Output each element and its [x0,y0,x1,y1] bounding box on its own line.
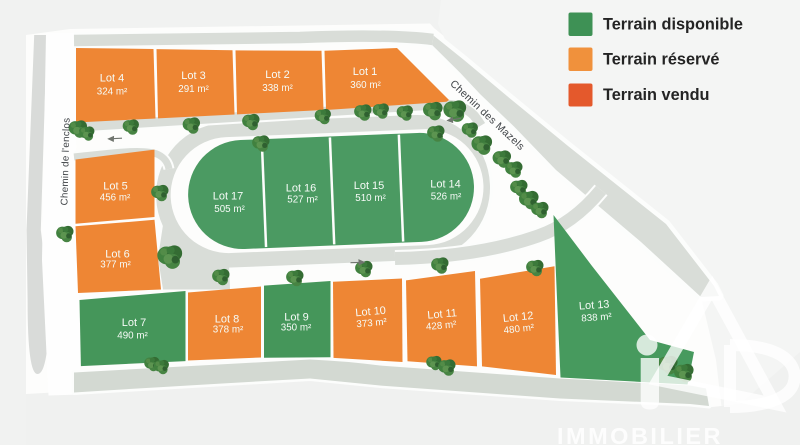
svg-text:Lot 1: Lot 1 [353,66,377,78]
svg-text:324 m²: 324 m² [97,87,128,98]
svg-text:Terrain réservé: Terrain réservé [603,51,719,69]
svg-text:Lot 13: Lot 13 [579,298,610,312]
svg-text:527 m²: 527 m² [287,195,318,206]
svg-text:456 m²: 456 m² [100,193,131,204]
svg-text:378 m²: 378 m² [213,325,244,336]
svg-text:Lot 2: Lot 2 [265,69,289,81]
svg-text:Terrain disponible: Terrain disponible [603,16,743,34]
svg-text:377 m²: 377 m² [100,260,131,271]
svg-text:IMMOBILIER: IMMOBILIER [557,423,723,445]
svg-text:Lot 3: Lot 3 [181,70,205,82]
svg-text:510 m²: 510 m² [355,193,386,204]
svg-text:Lot 17: Lot 17 [213,191,244,203]
svg-text:291 m²: 291 m² [178,84,209,95]
svg-text:Lot 4: Lot 4 [100,73,124,85]
svg-text:505 m²: 505 m² [214,204,245,215]
svg-text:Chemin de l'enclos: Chemin de l'enclos [59,117,72,205]
svg-text:Lot 5: Lot 5 [103,181,127,193]
svg-text:Lot 16: Lot 16 [286,183,317,195]
svg-text:Lot 14: Lot 14 [430,179,461,191]
svg-text:338 m²: 338 m² [262,83,293,94]
svg-text:526 m²: 526 m² [431,192,462,203]
svg-text:Lot 15: Lot 15 [354,180,385,192]
svg-text:838 m²: 838 m² [581,311,613,324]
svg-text:Lot 7: Lot 7 [122,317,146,329]
svg-text:Terrain vendu: Terrain vendu [603,86,709,104]
svg-text:360 m²: 360 m² [350,80,381,91]
svg-text:350 m²: 350 m² [281,323,312,334]
svg-text:490 m²: 490 m² [117,331,148,342]
